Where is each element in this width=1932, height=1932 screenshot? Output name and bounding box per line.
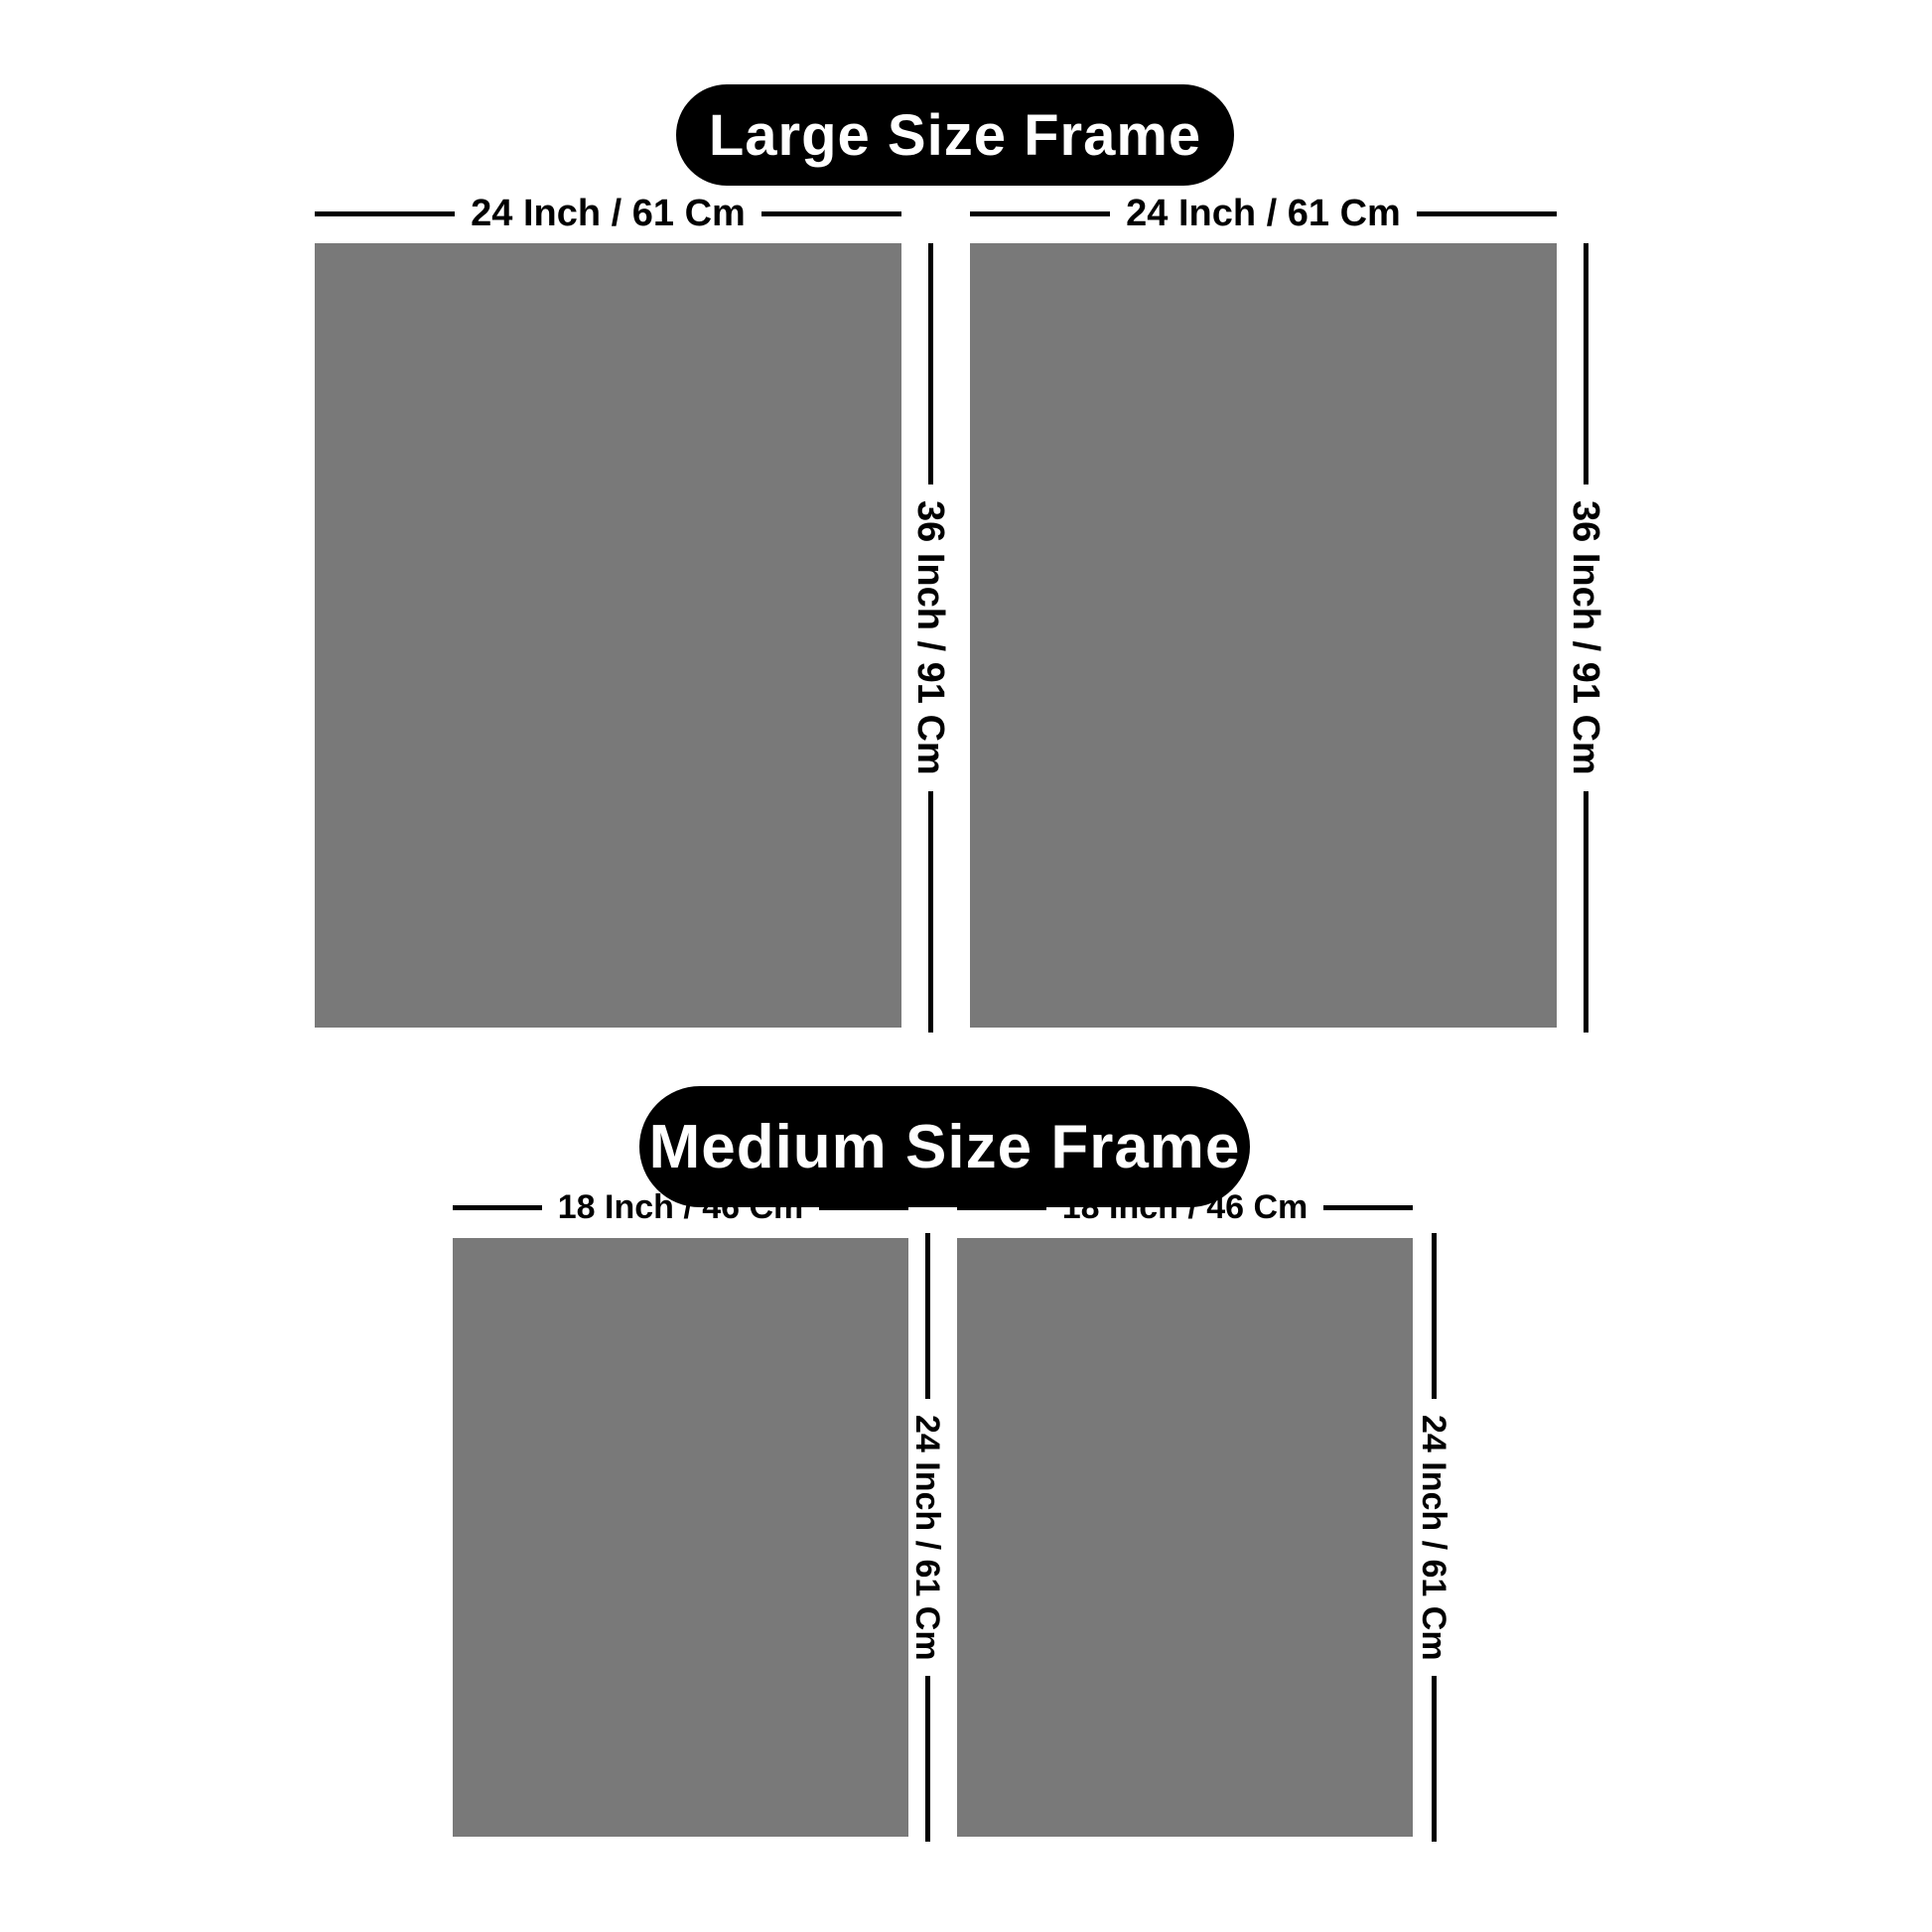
medium-size-title: Medium Size Frame — [649, 1112, 1241, 1182]
dimension-line-left — [315, 211, 455, 216]
large-size-title-pill: Large Size Frame — [676, 84, 1234, 186]
height-dimension-label: 24 Inch / 61 Cm — [910, 1415, 944, 1661]
height-dimension-label: 24 Inch / 61 Cm — [1417, 1415, 1450, 1661]
dimension-line-top — [1432, 1233, 1437, 1399]
width-dimension-label: 18 Inch / 46 Cm — [1062, 1190, 1309, 1224]
dimension-line-top — [928, 243, 933, 484]
dimension-line-top — [1584, 243, 1588, 484]
dimension-line-bottom — [925, 1676, 930, 1842]
width-dimension: 18 Inch / 46 Cm — [957, 1185, 1413, 1229]
frame-size-guide: Large Size Frame 24 Inch / 61 Cm 36 Inch… — [0, 0, 1932, 1932]
dimension-line-bottom — [928, 791, 933, 1033]
width-dimension-label: 18 Inch / 46 Cm — [558, 1190, 804, 1224]
dimension-line-left — [453, 1205, 542, 1210]
dimension-line-left — [970, 211, 1110, 216]
height-dimension: 24 Inch / 61 Cm — [905, 1233, 949, 1842]
large-size-title: Large Size Frame — [709, 102, 1201, 169]
dimension-line-left — [957, 1205, 1046, 1210]
height-dimension: 36 Inch / 91 Cm — [908, 243, 952, 1033]
frame-preview-rect — [453, 1238, 908, 1837]
height-dimension-label: 36 Inch / 91 Cm — [911, 500, 949, 775]
width-dimension-label: 24 Inch / 61 Cm — [471, 195, 746, 232]
dimension-line-bottom — [1584, 791, 1588, 1033]
dimension-line-top — [925, 1233, 930, 1399]
height-dimension: 24 Inch / 61 Cm — [1412, 1233, 1455, 1842]
width-dimension: 24 Inch / 61 Cm — [970, 192, 1557, 235]
height-dimension: 36 Inch / 91 Cm — [1564, 243, 1607, 1033]
width-dimension: 18 Inch / 46 Cm — [453, 1185, 908, 1229]
frame-preview-rect — [957, 1238, 1413, 1837]
frame-preview-rect — [970, 243, 1557, 1028]
dimension-line-right — [819, 1205, 908, 1210]
width-dimension: 24 Inch / 61 Cm — [315, 192, 901, 235]
dimension-line-right — [1323, 1205, 1413, 1210]
dimension-line-right — [761, 211, 901, 216]
frame-preview-rect — [315, 243, 901, 1028]
height-dimension-label: 36 Inch / 91 Cm — [1567, 500, 1604, 775]
width-dimension-label: 24 Inch / 61 Cm — [1126, 195, 1401, 232]
dimension-line-right — [1417, 211, 1557, 216]
dimension-line-bottom — [1432, 1676, 1437, 1842]
